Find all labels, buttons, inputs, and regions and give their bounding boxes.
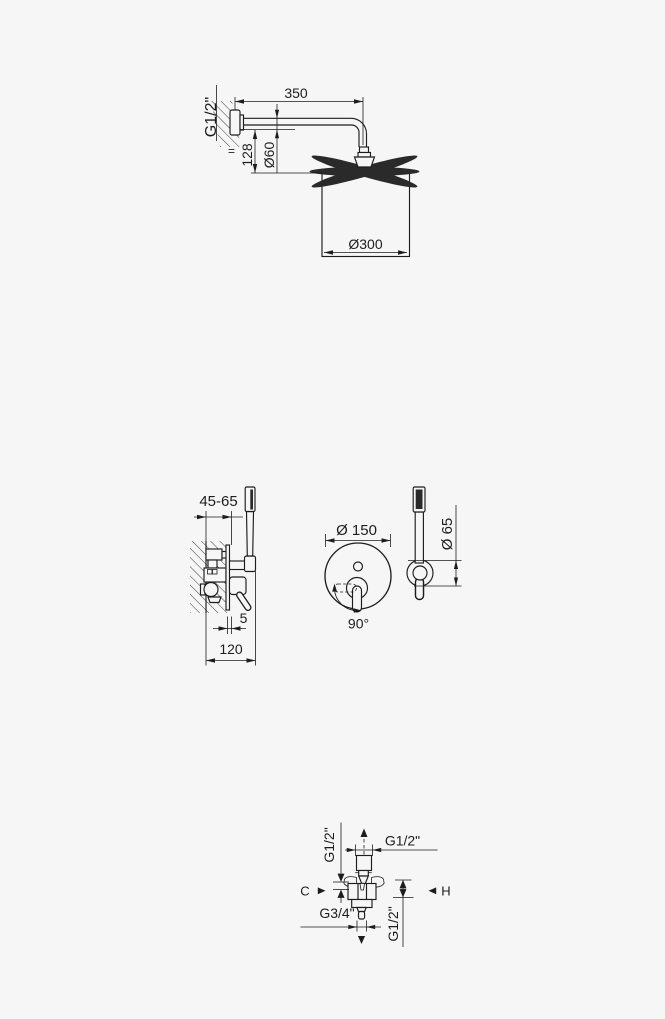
arm-length-label: 350	[284, 85, 308, 101]
cold-marker-label: C	[300, 884, 309, 899]
dim-right-thread: G1/2"	[385, 880, 414, 947]
hot-marker-label: H	[441, 884, 450, 899]
head-diameter-label: Ø300	[348, 236, 382, 252]
overhead-shower-drawing: 350 G1/2" = 128 Ø60 Ø300	[203, 85, 420, 257]
wall-thread-label: G1/2"	[203, 97, 220, 137]
flow-down-arrow	[358, 936, 365, 944]
projection-label: 120	[219, 641, 243, 657]
outlet-thread-label: G3/4"	[319, 905, 354, 921]
lever-down	[353, 586, 362, 612]
diverter-button	[354, 562, 363, 571]
plate-diameter-label: Ø 150	[336, 522, 377, 539]
dim-outlet-thread: G3/4"	[301, 905, 382, 944]
left-thread-label: G1/2"	[321, 827, 337, 862]
flow-up-arrow	[361, 829, 368, 856]
trim-plate-side	[226, 545, 230, 610]
head-connector	[355, 147, 375, 167]
dim-escutcheon-diameter: Ø60	[261, 104, 279, 173]
lever-swing-label: 90°	[348, 616, 369, 632]
dim-plate-thickness: 5	[213, 610, 248, 634]
dim-top-thread: G1/2"	[345, 833, 438, 857]
arm-flange	[230, 110, 240, 135]
dim-installation-depth: 45-65	[194, 493, 243, 545]
cold-marker: C	[300, 884, 325, 899]
mixer-front-view	[325, 543, 391, 613]
mixer-handle-side	[230, 577, 249, 608]
drop-height-label: 128	[239, 143, 255, 167]
right-thread-label: G1/2"	[385, 906, 401, 941]
valve-drawing: G1/2" G1/2" C H G1/2"	[300, 823, 450, 948]
escutcheon-diameter-label: Ø60	[261, 142, 277, 169]
plate-thickness-label: 5	[240, 610, 248, 626]
installation-depth-label: 45-65	[199, 493, 237, 510]
handshower-holder-view	[407, 487, 433, 596]
top-thread-label: G1/2"	[385, 833, 420, 849]
hot-marker: H	[429, 884, 451, 899]
holder-diameter-label: Ø 65	[439, 518, 456, 551]
equal-mark: =	[228, 144, 235, 158]
technical-drawing-sheet: 350 G1/2" = 128 Ø60 Ø300	[0, 0, 665, 1019]
mixer-drawing: 45-65 5 120	[190, 487, 462, 666]
